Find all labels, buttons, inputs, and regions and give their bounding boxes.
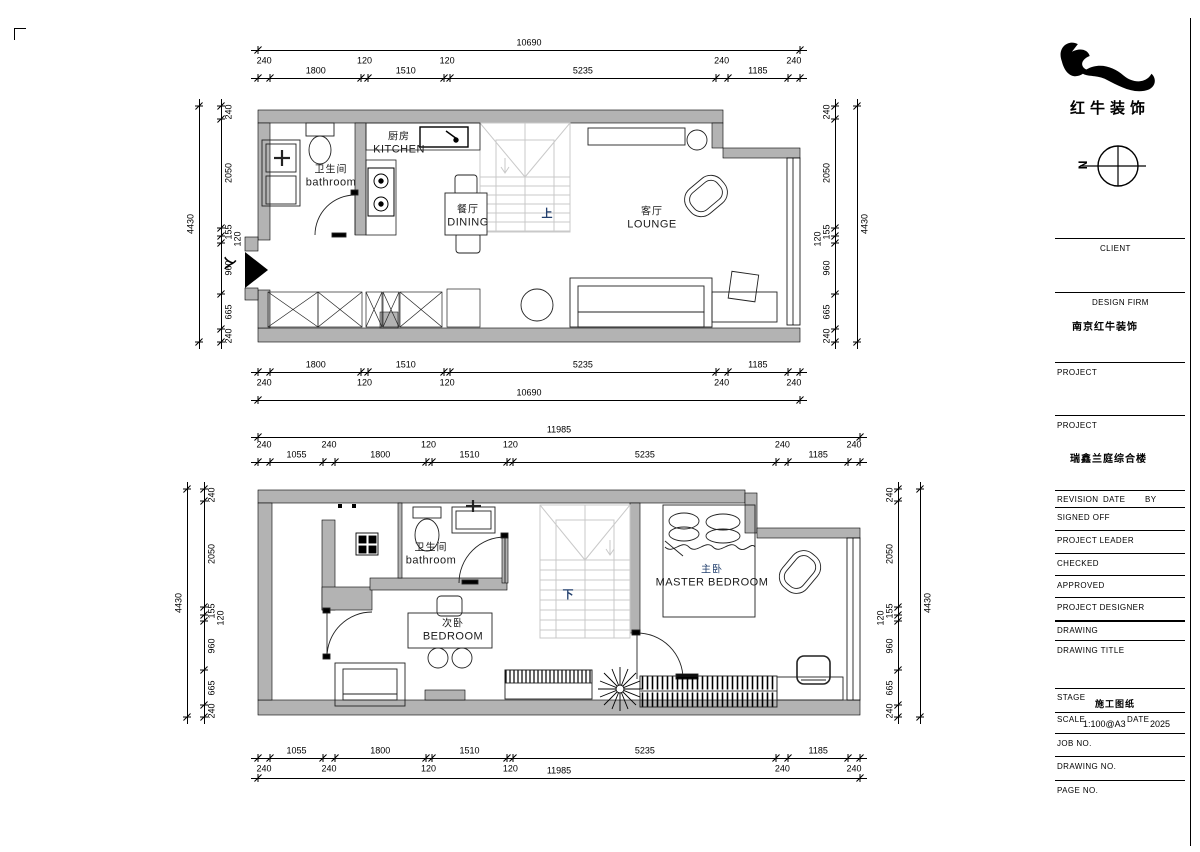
dim-segment-label: 1510 (396, 361, 416, 370)
dim-segment-label: 240 (322, 765, 337, 774)
dim-segment-label: 240 (714, 57, 729, 66)
dim-segment-label: 1510 (459, 747, 479, 756)
dim-segment-label: 240 (257, 765, 272, 774)
dim-segment-label: 665 (225, 304, 234, 319)
sink-icon (452, 500, 495, 533)
value-project: 瑞鑫兰庭综合楼 (1070, 450, 1147, 465)
dim-tick (894, 621, 902, 622)
stove-icon (368, 168, 394, 216)
dim-tick (513, 458, 514, 466)
dim-segment-label: 1510 (396, 67, 416, 76)
dim-overall-label: 10690 (516, 39, 541, 48)
dim-tick (183, 717, 191, 718)
dim-overall-label: 4430 (924, 593, 933, 613)
dim-tick (894, 501, 902, 502)
dim-tick (323, 754, 324, 762)
dresser-icon (777, 656, 843, 700)
dim-tick (853, 342, 861, 343)
field-revision: REVISION (1057, 495, 1098, 504)
room-label-kitchen: 厨房 KITCHEN (373, 131, 425, 156)
dim-segment-label: 1800 (306, 67, 326, 76)
dim-segment-label: 240 (225, 328, 234, 343)
master-door (632, 630, 698, 679)
dim-tick (894, 704, 902, 705)
field-signed-off: SIGNED OFF (1057, 513, 1110, 522)
corner-mark (14, 28, 15, 40)
dim-tick (727, 74, 728, 82)
dim-tick (367, 368, 368, 376)
field-page-no: PAGE NO. (1057, 786, 1098, 795)
dim-segment-label: 960 (208, 638, 217, 653)
dim-segment-label: 1185 (748, 361, 767, 370)
field-project-leader: PROJECT LEADER (1057, 536, 1134, 545)
dim-overall-label: 10690 (516, 389, 541, 398)
field-design-firm: DESIGN FIRM (1092, 298, 1149, 307)
field-project-1: PROJECT (1057, 368, 1097, 377)
dim-tick (894, 614, 902, 615)
corner-mark (14, 28, 26, 29)
dim-tick (258, 774, 259, 782)
dim-tick (894, 717, 902, 718)
bathroom-door (315, 190, 358, 237)
dim-segment-label: 120 (421, 441, 436, 450)
room-label-bedroom: 次卧 BEDROOM (423, 618, 483, 643)
field-project-designer: PROJECT DESIGNER (1057, 603, 1145, 612)
dim-tick (847, 458, 848, 466)
dim-segment-label: 1055 (287, 451, 307, 460)
dim-segment-label: 120 (440, 57, 455, 66)
dim-tick (195, 106, 203, 107)
dim-tick (831, 236, 839, 237)
dim-tick (258, 74, 259, 82)
dim-segment-label: 1800 (306, 361, 326, 370)
washer-icon (356, 533, 378, 555)
dim-segment-label: 240 (257, 57, 272, 66)
room-label-lounge: 客厅 LOUNGE (627, 206, 676, 231)
dim-segment-label: 960 (886, 638, 895, 653)
dim-tick (270, 754, 271, 762)
dim-segment-label: 240 (846, 441, 861, 450)
room-label-bathroom-lower: 卫生间 bathroom (406, 542, 456, 567)
dim-segment-label: 120 (357, 57, 372, 66)
field-project-2: PROJECT (1057, 421, 1097, 430)
dim-tick (335, 458, 336, 466)
door-mark (338, 504, 342, 508)
dim-tick (200, 670, 208, 671)
sheet-border-right (1190, 18, 1191, 846)
value-stage: 施工图纸 (1095, 697, 1135, 710)
dim-tick (195, 342, 203, 343)
dim-segment-label: 240 (886, 703, 895, 718)
dim-tick (788, 754, 789, 762)
dim-tick (860, 774, 861, 782)
dim-tick (715, 368, 716, 376)
dim-overall-label: 4430 (175, 593, 184, 613)
dim-segment-label: 120 (503, 441, 518, 450)
dim-tick (270, 368, 271, 376)
dim-tick (335, 754, 336, 762)
dim-tick (853, 106, 861, 107)
stair-label-down: 下 (563, 586, 574, 602)
dim-tick (258, 458, 259, 466)
dim-tick (361, 368, 362, 376)
armchair-icon (679, 170, 733, 223)
dim-segment-label: 240 (823, 328, 832, 343)
lower-floor-plan (250, 485, 870, 730)
dim-tick (776, 458, 777, 466)
dim-tick (507, 754, 508, 762)
plant-icon (598, 667, 642, 711)
value-date: 2025 (1150, 719, 1170, 729)
entry-arrow-icon (245, 252, 268, 288)
dim-tick (200, 621, 208, 622)
field-stage: STAGE (1057, 693, 1086, 702)
dim-tick (831, 227, 839, 228)
dim-tick (258, 368, 259, 376)
dim-overall-label: 11985 (547, 426, 571, 435)
dim-segment-label: 155 (823, 225, 832, 240)
dim-segment-label: 240 (786, 57, 801, 66)
field-by: BY (1145, 495, 1156, 504)
dim-tick (450, 74, 451, 82)
keyboard-icon (505, 670, 592, 699)
dim-segment-label: 240 (886, 488, 895, 503)
dim-tick (431, 458, 432, 466)
dim-tick (507, 458, 508, 466)
dim-segment-label: 240 (208, 703, 217, 718)
side-table-icon (712, 271, 777, 322)
dim-segment-label: 120 (440, 379, 455, 388)
dim-segment-label: 1800 (370, 451, 390, 460)
dim-tick (217, 293, 225, 294)
dim-segment-label: 120 (357, 379, 372, 388)
dim-segment-label: 5235 (573, 361, 593, 370)
dim-tick (831, 118, 839, 119)
dim-tick (513, 754, 514, 762)
dim-segment-label: 240 (322, 441, 337, 450)
dim-tick (894, 606, 902, 607)
dim-segment-label: 120 (503, 765, 518, 774)
dim-segment-label: 665 (208, 680, 217, 695)
field-scale: SCALE (1057, 715, 1085, 724)
field-client: CLIENT (1100, 244, 1131, 253)
kitchen-sink-icon (420, 127, 468, 147)
dim-segment-label: 960 (823, 261, 832, 276)
armchair2-icon (335, 663, 405, 706)
company-logo-icon (1055, 36, 1165, 98)
dim-tick (444, 74, 445, 82)
field-date: DATE (1127, 715, 1149, 724)
dim-segment-label: 1185 (808, 747, 827, 756)
dim-tick (258, 754, 259, 762)
value-design-firm: 南京红牛装饰 (1072, 318, 1138, 333)
stairs-up (480, 123, 570, 232)
dim-tick (787, 368, 788, 376)
dim-overall-label: 4430 (187, 214, 196, 234)
window-right (847, 538, 860, 700)
dim-tick (831, 293, 839, 294)
dim-tick (258, 396, 259, 404)
dim-tick (715, 74, 716, 82)
drawing-sheet: 卫生间 bathroom 厨房 KITCHEN 餐厅 DINING 客厅 LOU… (0, 0, 1200, 852)
value-scale: 1:100@A3 (1083, 719, 1126, 729)
window-right (787, 158, 800, 325)
dim-tick (831, 242, 839, 243)
armchair-icon (774, 545, 827, 599)
dim-tick (800, 74, 801, 82)
dim-tick (361, 74, 362, 82)
dim-tick (860, 458, 861, 466)
rug-icon (521, 289, 553, 321)
dim-tick (800, 46, 801, 54)
stairs-down (540, 505, 630, 638)
dim-segment-label: 240 (208, 488, 217, 503)
tv-console-icon (588, 128, 707, 150)
dim-segment-label: 155 (886, 603, 895, 618)
dim-segment-label: 5235 (573, 67, 593, 76)
dim-tick (894, 489, 902, 490)
door-mark (352, 504, 356, 508)
dim-tick (183, 489, 191, 490)
dim-tick (727, 368, 728, 376)
dim-tick (270, 458, 271, 466)
dim-segment-label: 240 (775, 441, 790, 450)
toilet-icon (306, 123, 334, 164)
dim-tick (217, 242, 225, 243)
dim-tick (800, 396, 801, 404)
closet-door (323, 608, 372, 659)
dim-tick (788, 458, 789, 466)
dim-tick (916, 489, 924, 490)
dim-tick (776, 754, 777, 762)
dim-segment-label: 1800 (370, 747, 390, 756)
field-date-col: DATE (1103, 495, 1125, 504)
upper-floor-plan (250, 105, 810, 355)
dim-overall-label: 4430 (861, 214, 870, 234)
field-drawing-no: DRAWING NO. (1057, 762, 1116, 771)
dim-segment-label: 2050 (886, 544, 895, 564)
bed-icon (663, 505, 755, 617)
field-checked: CHECKED (1057, 559, 1099, 568)
dim-segment-label: 240 (714, 379, 729, 388)
dim-segment-label: 120 (877, 610, 886, 625)
dim-segment-label: 120 (234, 232, 243, 247)
dim-tick (860, 754, 861, 762)
dim-segment-label: 1510 (459, 451, 479, 460)
dim-segment-label: 2050 (225, 163, 234, 183)
field-drawing: DRAWING (1057, 626, 1098, 635)
dim-tick (787, 74, 788, 82)
dim-segment-label: 120 (814, 232, 823, 247)
dim-segment-label: 120 (217, 610, 226, 625)
room-label-bathroom-upper: 卫生间 bathroom (306, 164, 356, 189)
dim-segment-label: 1055 (287, 747, 307, 756)
company-name: 红牛装饰 (1058, 97, 1162, 118)
dim-tick (831, 342, 839, 343)
dim-tick (444, 368, 445, 376)
dim-segment-label: 1185 (808, 451, 827, 460)
dim-tick (847, 754, 848, 762)
dim-segment-label: 240 (225, 105, 234, 120)
dim-segment-label: 240 (786, 379, 801, 388)
dim-segment-label: 240 (775, 765, 790, 774)
dim-segment-label: 240 (823, 105, 832, 120)
dim-tick (425, 458, 426, 466)
dim-segment-label: 120 (421, 765, 436, 774)
wardrobe-icon (640, 676, 777, 707)
room-label-master-bedroom: 主卧 MASTER BEDROOM (656, 564, 769, 589)
north-label: N (1075, 161, 1089, 170)
dim-tick (258, 46, 259, 54)
field-job-no: JOB NO. (1057, 739, 1092, 748)
dim-tick (425, 754, 426, 762)
dim-overall-label: 11985 (547, 767, 571, 776)
dim-tick (323, 458, 324, 466)
dim-segment-label: 665 (886, 680, 895, 695)
dim-segment-label: 960 (225, 261, 234, 276)
stair-label-up: 上 (542, 205, 553, 221)
field-approved: APPROVED (1057, 581, 1105, 590)
dim-segment-label: 5235 (635, 451, 655, 460)
dim-tick (831, 329, 839, 330)
dim-tick (270, 74, 271, 82)
dim-tick (800, 368, 801, 376)
dim-tick (831, 106, 839, 107)
dim-segment-label: 665 (823, 304, 832, 319)
dim-tick (450, 368, 451, 376)
room-label-dining: 餐厅 DINING (447, 204, 489, 229)
dim-segment-label: 1185 (748, 67, 767, 76)
dim-segment-label: 240 (257, 379, 272, 388)
dim-tick (916, 717, 924, 718)
dim-tick (431, 754, 432, 762)
dim-tick (894, 670, 902, 671)
dim-segment-label: 2050 (823, 163, 832, 183)
dim-segment-label: 5235 (635, 747, 655, 756)
dim-segment-label: 240 (257, 441, 272, 450)
bathroom-door (459, 533, 508, 584)
dim-segment-label: 240 (846, 765, 861, 774)
sofa-icon (570, 278, 712, 327)
wardrobe-icon (268, 289, 480, 327)
dim-segment-label: 2050 (208, 544, 217, 564)
field-drawing-title: DRAWING TITLE (1057, 646, 1124, 655)
dim-tick (367, 74, 368, 82)
